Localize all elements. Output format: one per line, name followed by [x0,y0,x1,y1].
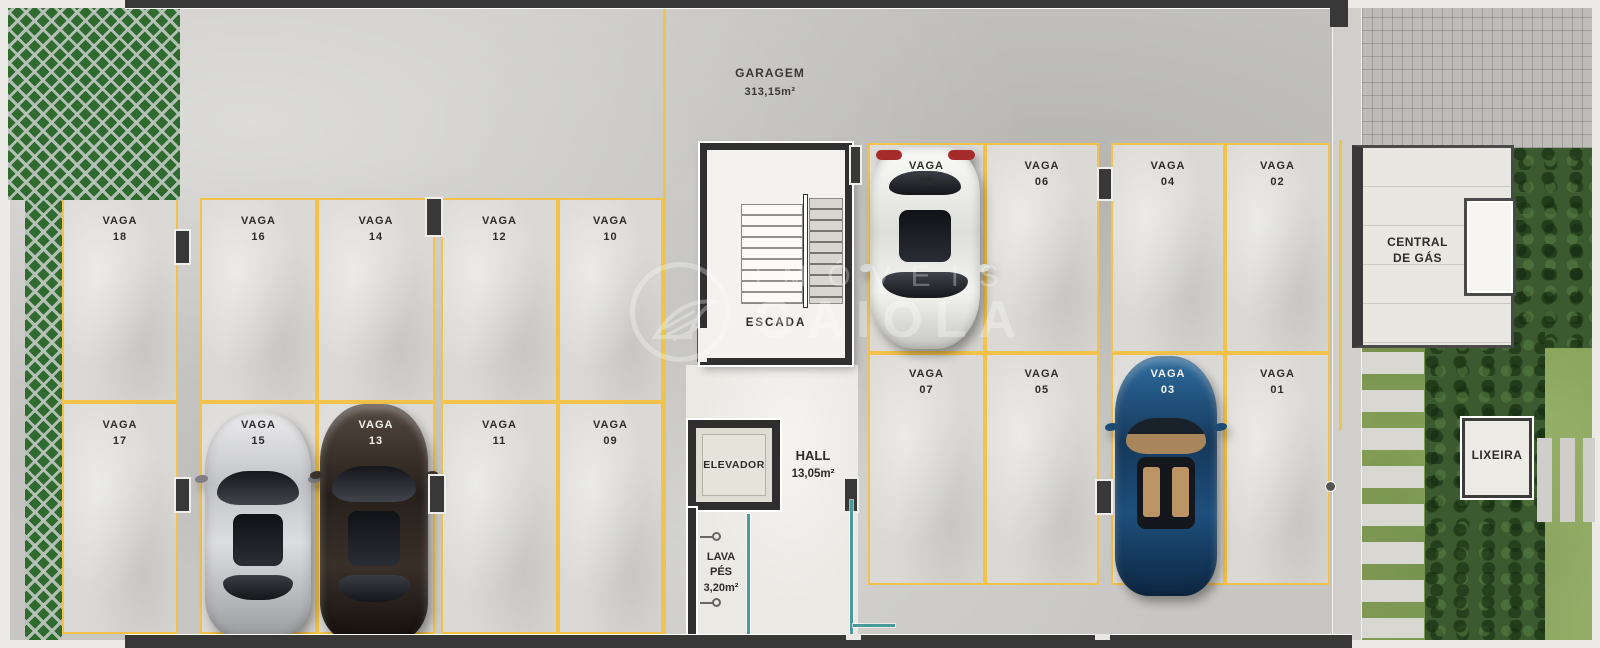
stall-label-10: VAGA10 [558,214,663,246]
gas-label-line2: DE GÁS [1393,251,1442,265]
hall-label: HALL 13,05m² [778,448,848,482]
car-windshield [882,272,968,298]
car-windshield [217,471,300,505]
footwash-label: LAVA PÉS 3,20m² [690,550,752,596]
gas-room-label: CENTRAL DE GÁS [1365,234,1470,266]
garage-name: GARAGEM [735,66,805,80]
yellow-guide-line [663,8,666,636]
stall-label-12: VAGA12 [441,214,558,246]
column [176,479,189,511]
glass-partition [850,500,853,634]
stall-label-14: VAGA14 [317,214,435,246]
stepping-pavers-horizontal [1362,352,1424,638]
stair-flight-right [809,198,843,304]
footwash-area: 3,20m² [704,582,739,594]
car-windshield [332,466,416,502]
top-wall [125,0,1348,9]
gas-room-door [1464,198,1516,296]
car-sunroof [348,511,400,566]
hall-area: 13,05m² [792,468,835,480]
car-sunroof [899,210,952,263]
wall-joint [846,634,861,640]
stall-label-16: VAGA16 [200,214,317,246]
green-lattice-strip [25,200,62,640]
gas-label-line1: CENTRAL [1387,235,1448,249]
stall-label-02: VAGA02 [1225,159,1330,191]
trash-enclosure: LIXEIRA [1462,418,1532,498]
stall-label-04: VAGA04 [1111,159,1225,191]
car-rear-window [338,575,409,601]
column [1099,169,1111,199]
stair-door-opening [697,328,707,362]
stairs-label: ESCADA [707,318,845,330]
stall-label-13: VAGA13 [317,418,435,450]
gas-central-room: CENTRAL DE GÁS [1352,145,1514,348]
car-seat [1172,467,1189,517]
trash-enclosure-label: LIXEIRA [1465,449,1529,461]
elevator-label: ELEVADOR [696,460,772,471]
footwash-line1: LAVA [707,551,735,563]
car-rear-window [223,575,293,600]
top-right-wall [1330,0,1348,27]
green-lattice-paving [8,8,180,200]
faucet-icon [712,532,721,541]
stair-flight-left [741,204,803,304]
wall-joint [1095,634,1110,640]
car-sunroof [233,514,284,566]
garage-title: GARAGEM 313,15m² [690,64,850,101]
stall-label-08: VAGA08 [868,159,985,191]
car-open-roof [1137,457,1194,529]
hedge-top [1513,148,1592,348]
stall-label-18: VAGA18 [62,214,178,246]
hall-name: HALL [796,448,831,463]
stall-label-09: VAGA09 [558,418,663,450]
stall-label-06: VAGA06 [985,159,1099,191]
stall-label-11: VAGA11 [441,418,558,450]
boundary-post [1326,482,1335,491]
column [851,147,860,183]
stall-label-15: VAGA15 [200,418,317,450]
stepping-pavers-vertical [1537,438,1595,522]
yellow-edge-line [1339,140,1342,430]
footwash-line2: PÉS [710,566,732,578]
stall-label-01: VAGA01 [1225,367,1330,399]
stall-label-05: VAGA05 [985,367,1099,399]
garage-area: 313,15m² [744,86,795,98]
stair-rail [803,194,808,308]
garage-floor-plan: CENTRAL DE GÁS LIXEIRA [0,0,1600,648]
bottom-wall [125,634,1352,648]
stall-label-07: VAGA07 [868,367,985,399]
elevator: ELEVADOR [688,420,780,510]
stall-label-03: VAGA03 [1111,367,1225,399]
car-seat [1143,467,1160,517]
car-windshield [1126,418,1206,454]
stairwell: ESCADA [700,143,852,365]
cobblestone-patio [1362,8,1592,148]
faucet-icon [712,598,721,607]
column [430,476,444,512]
stall-label-17: VAGA17 [62,418,178,450]
column [1097,481,1111,513]
glass-door-line [853,624,895,627]
